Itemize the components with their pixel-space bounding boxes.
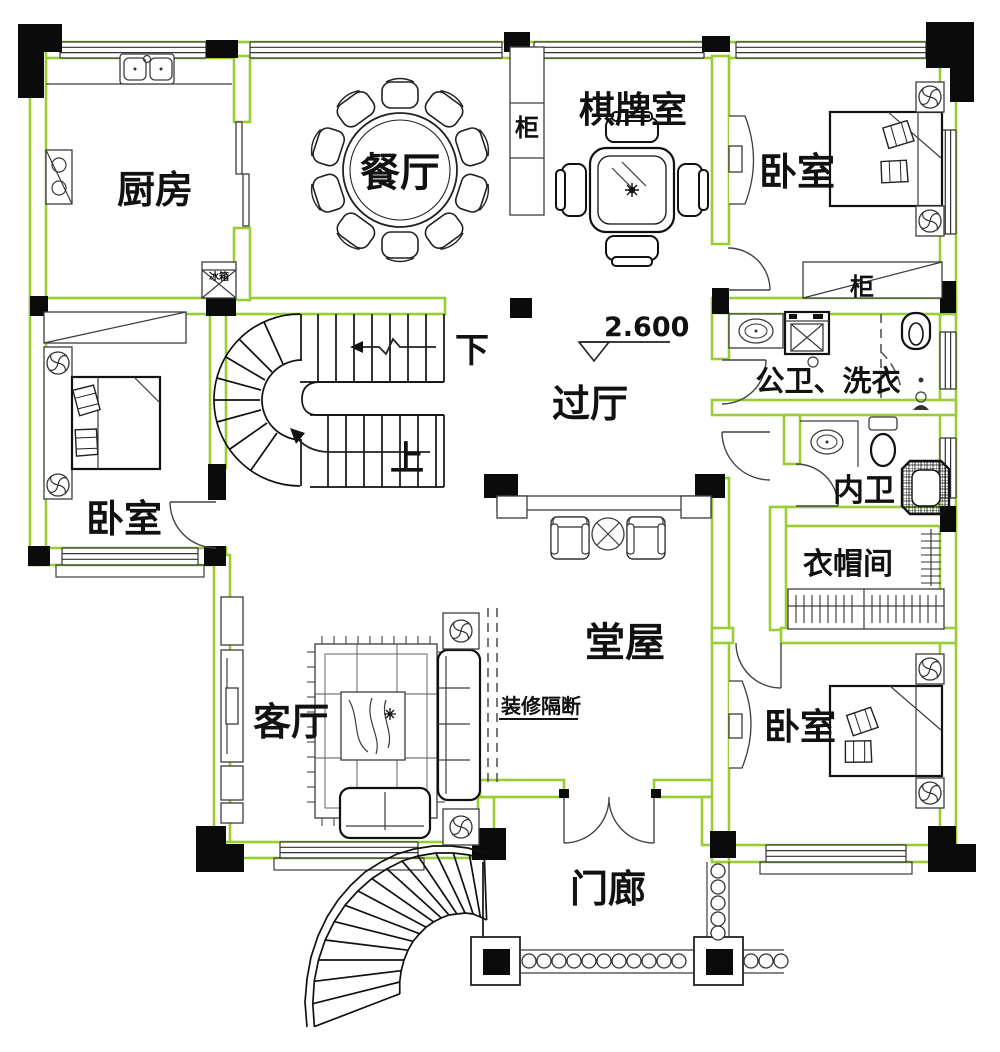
label-partition: 装修隔断: [500, 694, 581, 718]
kitchen-stove: [46, 150, 72, 204]
label-bedroom-top-right: 卧室: [759, 150, 835, 194]
kitchen-sink: [120, 54, 174, 84]
main-entrance-double-door: [559, 789, 661, 843]
label-living-room: 客厅: [253, 700, 329, 744]
bedroom-left-furniture: [44, 312, 186, 499]
window-top-bedroom: [736, 42, 926, 58]
window-bedroom-left: [56, 548, 204, 577]
label-porch: 门廊: [570, 867, 646, 911]
door-bedroom-left: [170, 502, 216, 548]
door-corridor: [722, 432, 770, 480]
elevation-marker: [579, 342, 670, 361]
window-top-dining: [250, 42, 502, 58]
washing-machine: [785, 312, 829, 354]
fridge: 冰箱: [202, 262, 236, 298]
label-cabinet-chess: 柜: [515, 114, 539, 142]
label-hallway: 过厅: [552, 382, 628, 426]
label-stairs-down: 下: [455, 331, 489, 371]
label-bath-laundry: 公卫、洗衣: [755, 364, 900, 398]
chess-room-set: [510, 47, 708, 266]
label-bedroom-left: 卧室: [86, 497, 162, 541]
chess-table-flower: [625, 183, 639, 197]
sofa-short: [340, 788, 430, 838]
sofa-long: [438, 650, 480, 800]
floor-plan-canvas: 冰箱: [0, 0, 1000, 1052]
main-hall-furniture: [497, 496, 711, 559]
bedroom-bottom-right-furniture: [729, 654, 944, 808]
label-inner-bath: 内卫: [833, 473, 895, 509]
label-cloakroom: 衣帽间: [803, 547, 893, 582]
exterior-curved-stair: [305, 846, 487, 1027]
label-dining: 餐厅: [360, 150, 440, 196]
porch-railing-balusters: [522, 864, 788, 968]
window-living: [274, 842, 424, 870]
shower: [902, 461, 949, 514]
window-top-chess: [534, 42, 704, 58]
kitchen-sliding-door: [236, 122, 249, 226]
toilet: [869, 417, 897, 466]
fridge-label: 冰箱: [209, 270, 229, 283]
door-bedroom-top-right: [728, 248, 770, 290]
door-inner-bath: [796, 464, 838, 506]
stairs-down-arrow: [350, 339, 436, 354]
window-right-bath: [940, 332, 956, 389]
window-bedroom-bottom-right: [760, 845, 912, 874]
label-stairs-up: 上: [390, 439, 424, 479]
squat-toilet: [902, 313, 930, 349]
label-kitchen: 厨房: [117, 168, 193, 212]
label-chess-room: 棋牌室: [579, 90, 687, 131]
label-bedroom-bottom-right: 卧室: [764, 707, 836, 748]
label-cabinet-bedroom: 柜: [850, 273, 874, 301]
wardrobe-left: [44, 312, 186, 343]
label-main-hall: 堂屋: [585, 620, 665, 666]
label-elevation: 2.600: [604, 312, 689, 343]
floor-plan-svg: 冰箱: [0, 0, 1000, 1052]
